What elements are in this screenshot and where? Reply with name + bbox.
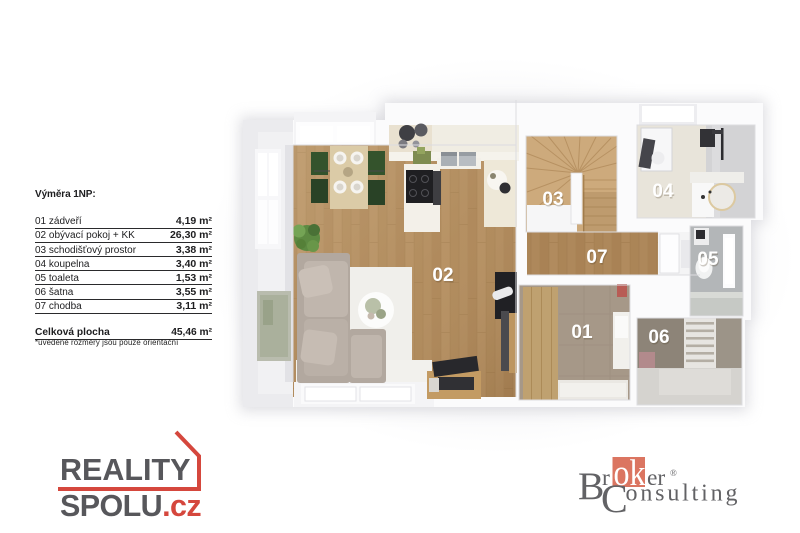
svg-text:06: 06 xyxy=(648,327,669,348)
svg-text:02: 02 xyxy=(432,265,453,286)
svg-text:03: 03 xyxy=(542,189,563,210)
svg-text:07: 07 xyxy=(586,247,607,268)
svg-text:04: 04 xyxy=(652,181,674,202)
svg-text:01: 01 xyxy=(571,322,593,343)
svg-text:onsulting: onsulting xyxy=(626,481,738,507)
svg-text:C: C xyxy=(601,476,628,521)
svg-text:05: 05 xyxy=(697,249,719,270)
svg-text:®: ® xyxy=(670,468,677,478)
